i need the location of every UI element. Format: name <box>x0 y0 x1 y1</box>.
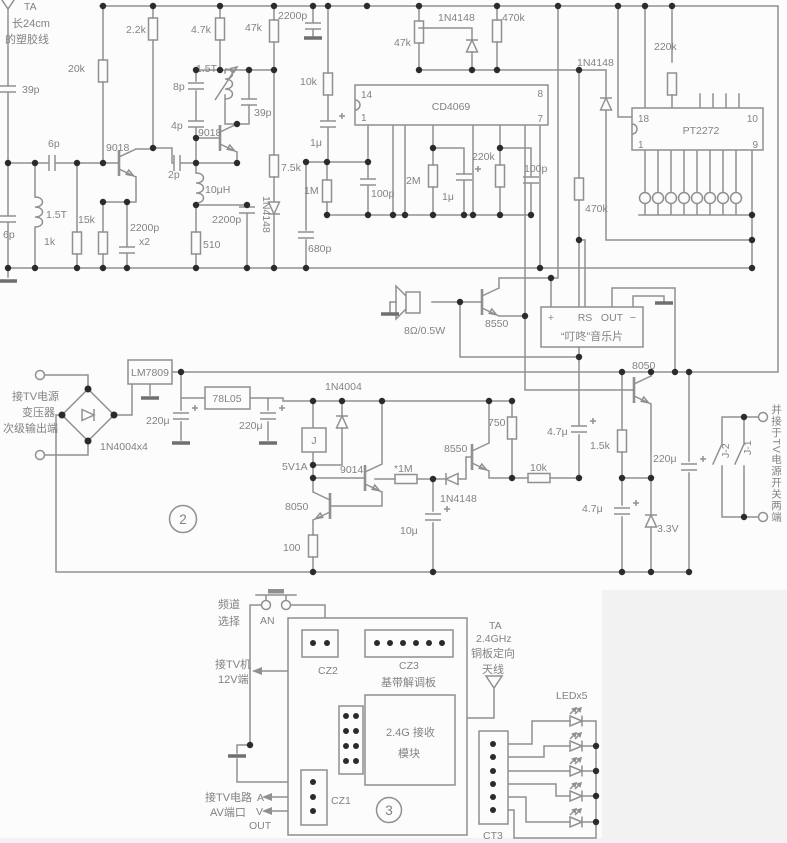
svg-text:10k: 10k <box>530 462 548 474</box>
connector-cz2 <box>302 630 338 657</box>
svg-text:接TV电路: 接TV电路 <box>205 791 252 804</box>
svg-text:7.5k: 7.5k <box>281 162 302 174</box>
svg-text:9018: 9018 <box>198 127 222 139</box>
svg-text:8550: 8550 <box>444 443 468 455</box>
label-module1: 2.4G 接收 <box>386 725 435 739</box>
svg-text:100p: 100p <box>371 188 395 200</box>
transistor-8550-2 <box>472 443 489 471</box>
bridge-rectifier <box>62 389 114 441</box>
svg-text:接TV电源: 接TV电源 <box>12 389 59 403</box>
svg-text:1.5T: 1.5T <box>196 63 218 75</box>
board3-receiver: 频道 选择 AN CZ2 CZ3 基带解调板 接TV机 12V端 TA 2.4G… <box>205 589 596 842</box>
label-baseband: 基带解调板 <box>381 675 436 689</box>
svg-text:1k: 1k <box>44 236 56 248</box>
schematic-page: TA 长24cm 的塑胶线 39p 6p 1.5T 6p 1k 15k 20k … <box>0 0 787 843</box>
svg-text:1N4148: 1N4148 <box>440 493 477 505</box>
led-4 <box>570 783 582 802</box>
label-module2: 模块 <box>398 747 420 760</box>
svg-text:2200p: 2200p <box>278 10 307 22</box>
svg-text:2.2k: 2.2k <box>126 24 147 36</box>
led-2 <box>570 733 582 752</box>
svg-text:9018: 9018 <box>106 142 130 154</box>
circuit-schematic: TA 长24cm 的塑胶线 39p 6p 1.5T 6p 1k 15k 20k … <box>0 0 787 843</box>
svg-text:2.4GHz: 2.4GHz <box>476 633 512 645</box>
svg-text:680p: 680p <box>308 243 332 255</box>
svg-text:10k: 10k <box>300 76 318 88</box>
svg-text:10: 10 <box>747 114 759 125</box>
antenna-2g4-icon <box>486 676 502 692</box>
svg-text:1μ: 1μ <box>442 191 454 203</box>
module-header <box>339 706 363 774</box>
svg-text:*1M: *1M <box>394 463 413 475</box>
svg-text:220k: 220k <box>654 41 678 53</box>
transistor-8550-1 <box>482 288 499 316</box>
svg-text:10μ: 10μ <box>400 525 418 537</box>
svg-text:铜板定向: 铜板定向 <box>471 646 515 660</box>
svg-text:CZ2: CZ2 <box>318 665 338 677</box>
svg-text:9: 9 <box>752 140 758 151</box>
svg-text:1: 1 <box>361 113 367 124</box>
svg-text:8050: 8050 <box>285 501 309 513</box>
board2-labels: 8Ω/0.5W 8550 + RS OUT − “叮咚”音乐片 8050 接TV… <box>3 312 754 554</box>
svg-text:6p: 6p <box>48 138 60 150</box>
zener-3v3 <box>645 515 657 527</box>
antenna-icon <box>0 0 16 13</box>
svg-text:J-2: J-2 <box>720 443 732 458</box>
svg-text:频道: 频道 <box>218 597 240 611</box>
svg-text:J-1: J-1 <box>742 440 754 455</box>
svg-text:1μ: 1μ <box>310 137 322 149</box>
label-speaker: 8Ω/0.5W <box>404 325 445 337</box>
svg-text:V: V <box>256 806 263 818</box>
speaker-icon <box>396 286 420 319</box>
svg-text:天线: 天线 <box>482 662 504 676</box>
transistor-8050-1 <box>313 492 330 520</box>
svg-text:220μ: 220μ <box>653 453 677 465</box>
svg-text:1: 1 <box>638 140 644 151</box>
svg-text:1N4004: 1N4004 <box>325 381 362 393</box>
svg-text:A: A <box>257 792 264 804</box>
svg-text:100p: 100p <box>524 163 548 175</box>
board1-components <box>0 0 677 281</box>
transistor-9018-2 <box>220 124 237 152</box>
ac-terminal-1 <box>36 371 45 380</box>
svg-text:39p: 39p <box>22 84 40 96</box>
svg-text:10μH: 10μH <box>205 184 230 196</box>
led-5 <box>570 809 582 828</box>
label-switch-note: 并接于TV电源开关两端 <box>769 404 784 538</box>
svg-text:1.5k: 1.5k <box>590 440 611 452</box>
svg-text:20k: 20k <box>68 63 86 75</box>
switch-terminal-1 <box>759 413 768 422</box>
svg-text:LM7809: LM7809 <box>131 367 169 379</box>
svg-text:次级输出端: 次级输出端 <box>3 421 58 435</box>
svg-text:1.5T: 1.5T <box>46 209 68 221</box>
svg-text:x2: x2 <box>139 236 150 248</box>
svg-text:2200p: 2200p <box>212 214 241 226</box>
svg-text:510: 510 <box>203 239 221 251</box>
svg-text:2: 2 <box>179 512 187 527</box>
svg-text:78L05: 78L05 <box>212 393 241 405</box>
svg-text:5V1A: 5V1A <box>282 461 308 473</box>
svg-text:12V端: 12V端 <box>218 673 249 686</box>
svg-text:47k: 47k <box>394 37 412 49</box>
svg-text:220μ: 220μ <box>146 415 170 427</box>
label-cd4069: CD4069 <box>432 101 471 113</box>
svg-text:470k: 470k <box>502 12 526 24</box>
svg-text:J: J <box>311 435 316 447</box>
label-pt2272: PT2272 <box>683 125 720 137</box>
pushbutton-an-icon <box>268 589 284 594</box>
svg-text:−: − <box>630 312 636 324</box>
board2-power: 8Ω/0.5W 8550 + RS OUT − “叮咚”音乐片 8050 接TV… <box>3 240 768 572</box>
svg-text:CT3: CT3 <box>483 830 503 842</box>
label-ant1: 长24cm <box>12 17 50 30</box>
led-1 <box>570 708 582 727</box>
svg-text:15k: 15k <box>78 214 96 226</box>
svg-text:8: 8 <box>537 89 543 100</box>
button-terminal-2 <box>282 601 291 610</box>
svg-text:CZ1: CZ1 <box>331 795 351 807</box>
svg-text:+: + <box>548 312 554 324</box>
pt2272-pads <box>640 193 742 204</box>
svg-text:1N4148: 1N4148 <box>438 12 475 24</box>
svg-text:4p: 4p <box>171 120 183 132</box>
svg-text:LEDx5: LEDx5 <box>556 690 588 702</box>
svg-text:选择: 选择 <box>218 614 240 628</box>
board1-transmitter: TA 长24cm 的塑胶线 39p 6p 1.5T 6p 1k 15k 20k … <box>0 0 778 425</box>
svg-text:CZ3: CZ3 <box>399 660 419 672</box>
svg-text:4.7k: 4.7k <box>191 24 212 36</box>
svg-text:AV端口: AV端口 <box>210 806 246 819</box>
svg-text:接TV机: 接TV机 <box>215 657 251 671</box>
svg-text:4.7μ: 4.7μ <box>547 426 568 438</box>
svg-text:3: 3 <box>385 803 393 818</box>
svg-text:220k: 220k <box>472 151 496 163</box>
svg-text:OUT: OUT <box>249 820 272 832</box>
svg-text:100: 100 <box>283 542 301 554</box>
svg-text:1N4148: 1N4148 <box>260 196 272 233</box>
svg-text:TA: TA <box>489 620 502 632</box>
svg-text:470k: 470k <box>585 203 609 215</box>
transistor-8050-3 <box>634 376 651 404</box>
svg-text:4.7μ: 4.7μ <box>582 503 603 515</box>
svg-text:750: 750 <box>488 417 506 429</box>
svg-text:220μ: 220μ <box>239 420 263 432</box>
svg-text:变压器: 变压器 <box>22 405 55 419</box>
transistor-9014 <box>365 464 382 492</box>
label-music-chip: “叮咚”音乐片 <box>561 329 623 343</box>
svg-text:1M: 1M <box>304 185 319 197</box>
svg-text:2200p: 2200p <box>130 222 159 234</box>
svg-text:18: 18 <box>638 114 650 125</box>
module-2g4 <box>365 695 455 785</box>
switch-terminal-2 <box>759 513 768 522</box>
svg-text:9014: 9014 <box>340 464 364 476</box>
svg-text:1N4004x4: 1N4004x4 <box>100 441 148 453</box>
label-ta: TA <box>24 1 37 13</box>
button-terminal-1 <box>262 601 271 610</box>
svg-text:1N4148: 1N4148 <box>577 57 614 69</box>
svg-text:RS: RS <box>578 312 593 324</box>
svg-text:2M: 2M <box>406 175 421 187</box>
svg-text:39p: 39p <box>254 107 272 119</box>
svg-text:7: 7 <box>537 114 543 125</box>
svg-text:3.3V: 3.3V <box>657 523 679 535</box>
svg-text:47k: 47k <box>245 22 263 34</box>
ac-terminal-2 <box>36 451 45 460</box>
led-3 <box>570 758 582 777</box>
arrow-12v <box>252 667 262 675</box>
arrow-v-out <box>262 807 272 815</box>
svg-text:14: 14 <box>361 90 373 101</box>
board2-wires <box>45 240 758 572</box>
label-ant2: 的塑胶线 <box>5 32 49 46</box>
svg-text:2p: 2p <box>168 169 180 181</box>
svg-text:8p: 8p <box>173 81 185 93</box>
svg-text:8550: 8550 <box>485 318 509 330</box>
svg-text:OUT: OUT <box>601 312 624 324</box>
svg-text:6p: 6p <box>3 229 15 241</box>
svg-text:AN: AN <box>260 615 275 627</box>
